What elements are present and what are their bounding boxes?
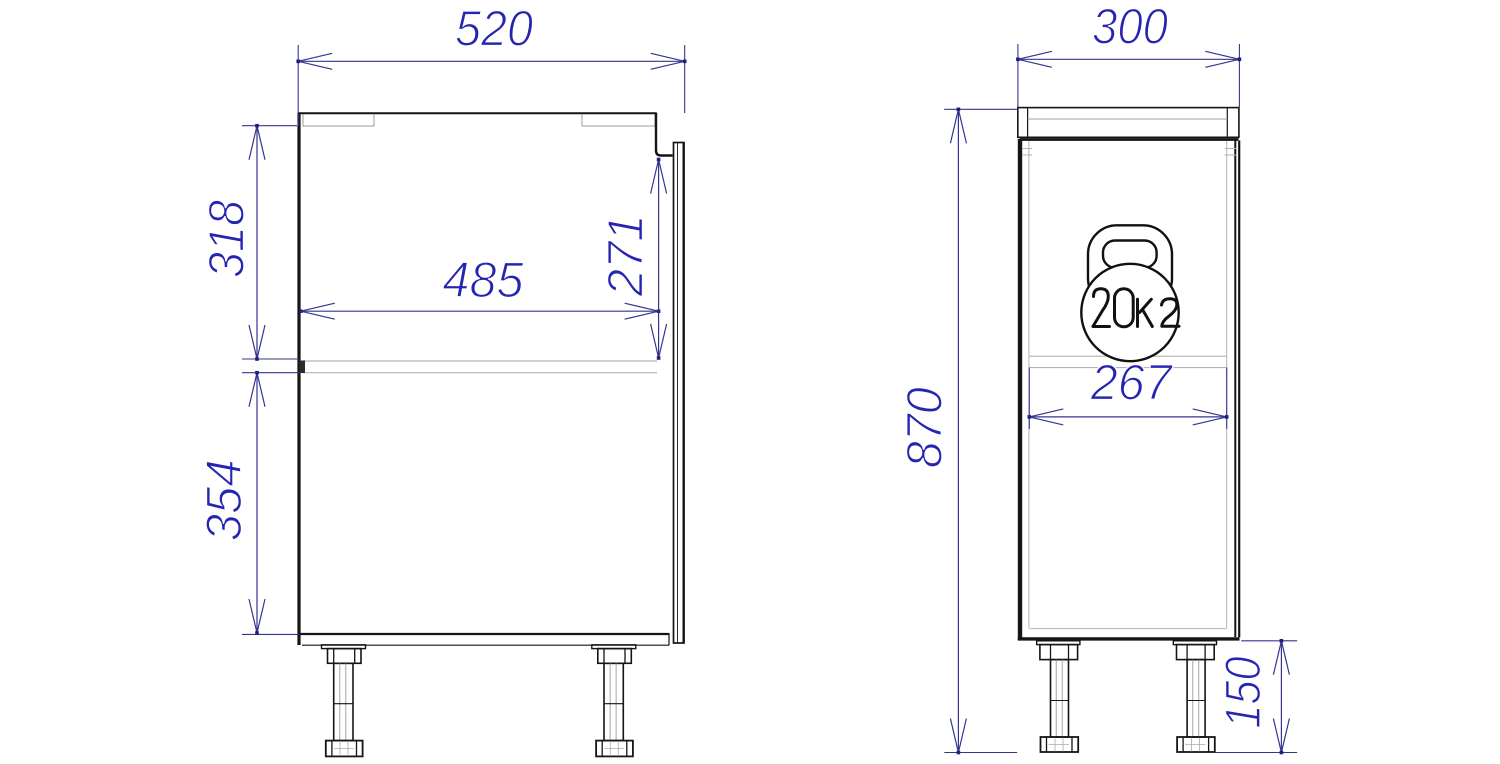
svg-text:354: 354 [196, 459, 252, 541]
svg-text:485: 485 [443, 252, 524, 308]
svg-text:300: 300 [1092, 0, 1168, 55]
svg-text:520: 520 [455, 1, 533, 57]
svg-text:150: 150 [1215, 656, 1271, 728]
svg-text:271: 271 [598, 214, 654, 297]
svg-text:870: 870 [897, 387, 953, 468]
svg-text:267: 267 [1090, 355, 1174, 411]
svg-text:318: 318 [199, 200, 255, 278]
